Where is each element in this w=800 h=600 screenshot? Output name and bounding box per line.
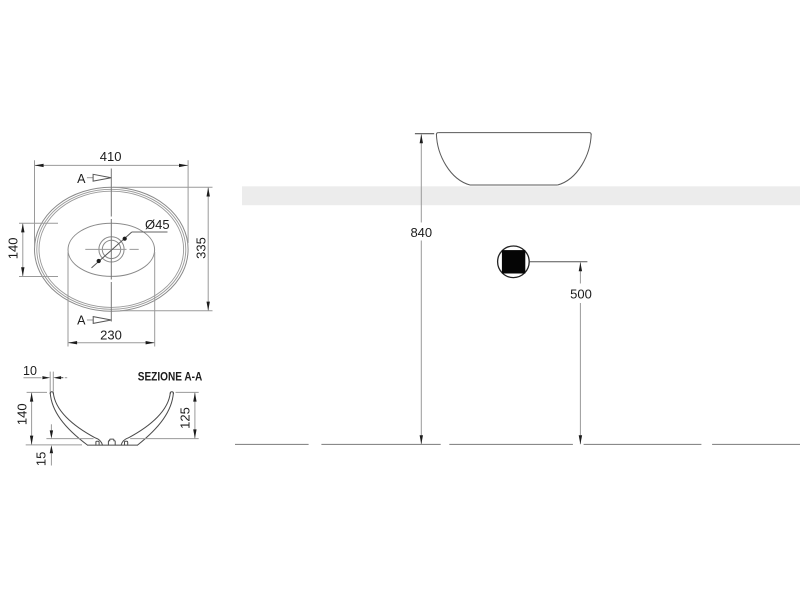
svg-text:140: 140 (14, 403, 29, 425)
svg-text:500: 500 (570, 286, 592, 301)
svg-text:SEZIONE A-A: SEZIONE A-A (138, 369, 203, 383)
svg-text:140: 140 (6, 238, 21, 260)
svg-text:410: 410 (100, 149, 122, 164)
svg-text:230: 230 (100, 328, 122, 343)
svg-text:Ø45: Ø45 (145, 217, 170, 232)
svg-text:A: A (77, 314, 86, 328)
svg-text:A: A (77, 172, 86, 186)
svg-text:840: 840 (410, 225, 432, 240)
svg-text:335: 335 (193, 237, 208, 259)
svg-text:125: 125 (177, 407, 192, 429)
svg-text:10: 10 (23, 364, 37, 378)
svg-text:15: 15 (34, 452, 49, 466)
